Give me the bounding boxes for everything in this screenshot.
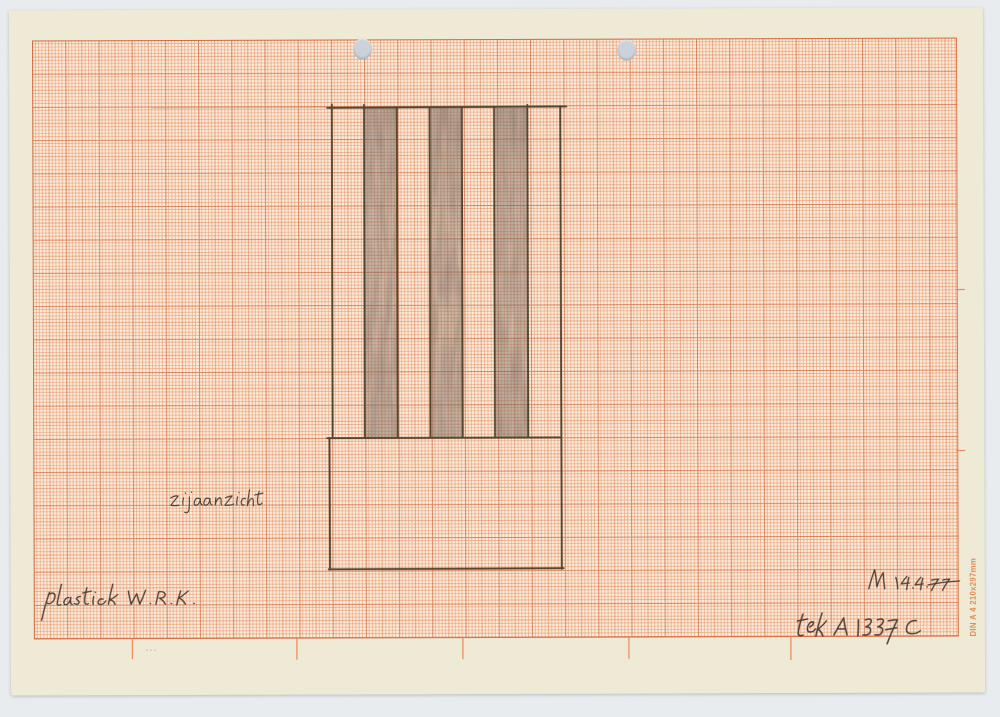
svg-text:DIN A 4 210x297mm: DIN A 4 210x297mm bbox=[969, 558, 978, 637]
